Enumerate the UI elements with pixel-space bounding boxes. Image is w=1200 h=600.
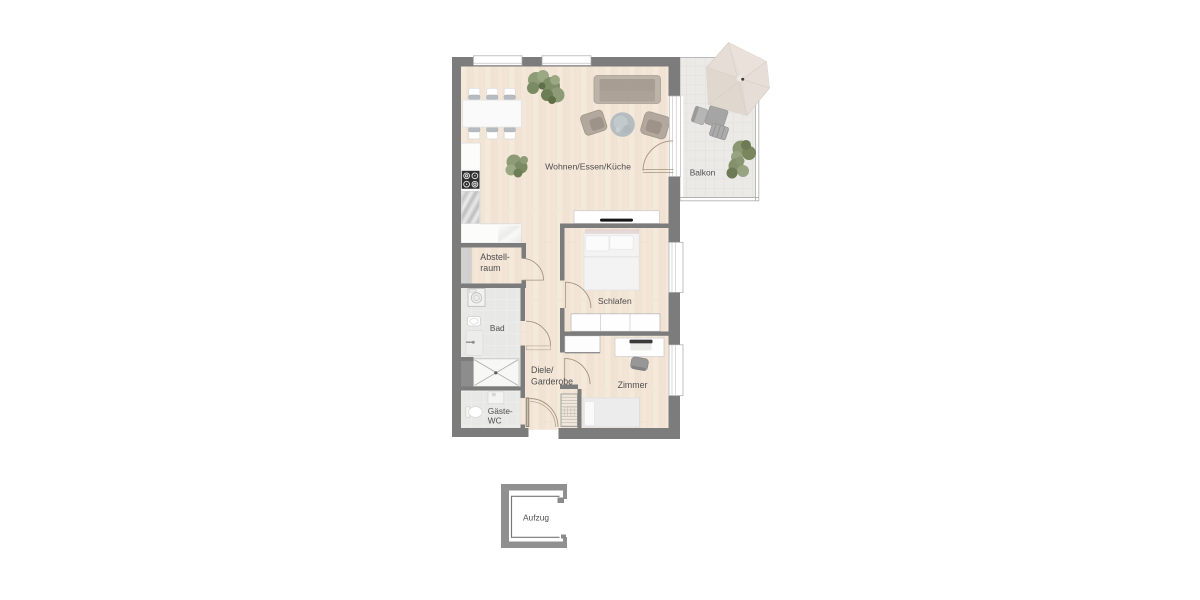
svg-text:Diele/: Diele/ <box>531 365 554 375</box>
svg-text:Schlafen: Schlafen <box>598 296 632 306</box>
svg-text:Garderobe: Garderobe <box>531 377 573 387</box>
svg-text:WC: WC <box>488 415 502 425</box>
svg-text:Bad: Bad <box>490 323 505 333</box>
svg-text:Gäste-: Gäste- <box>488 406 513 416</box>
svg-text:Abstell-: Abstell- <box>480 252 510 262</box>
svg-text:Wohnen/Essen/Küche: Wohnen/Essen/Küche <box>545 161 631 171</box>
svg-text:Balkon: Balkon <box>690 167 716 177</box>
svg-text:Zimmer: Zimmer <box>618 380 648 390</box>
svg-text:Aufzug: Aufzug <box>523 512 549 522</box>
svg-text:raum: raum <box>480 263 500 273</box>
